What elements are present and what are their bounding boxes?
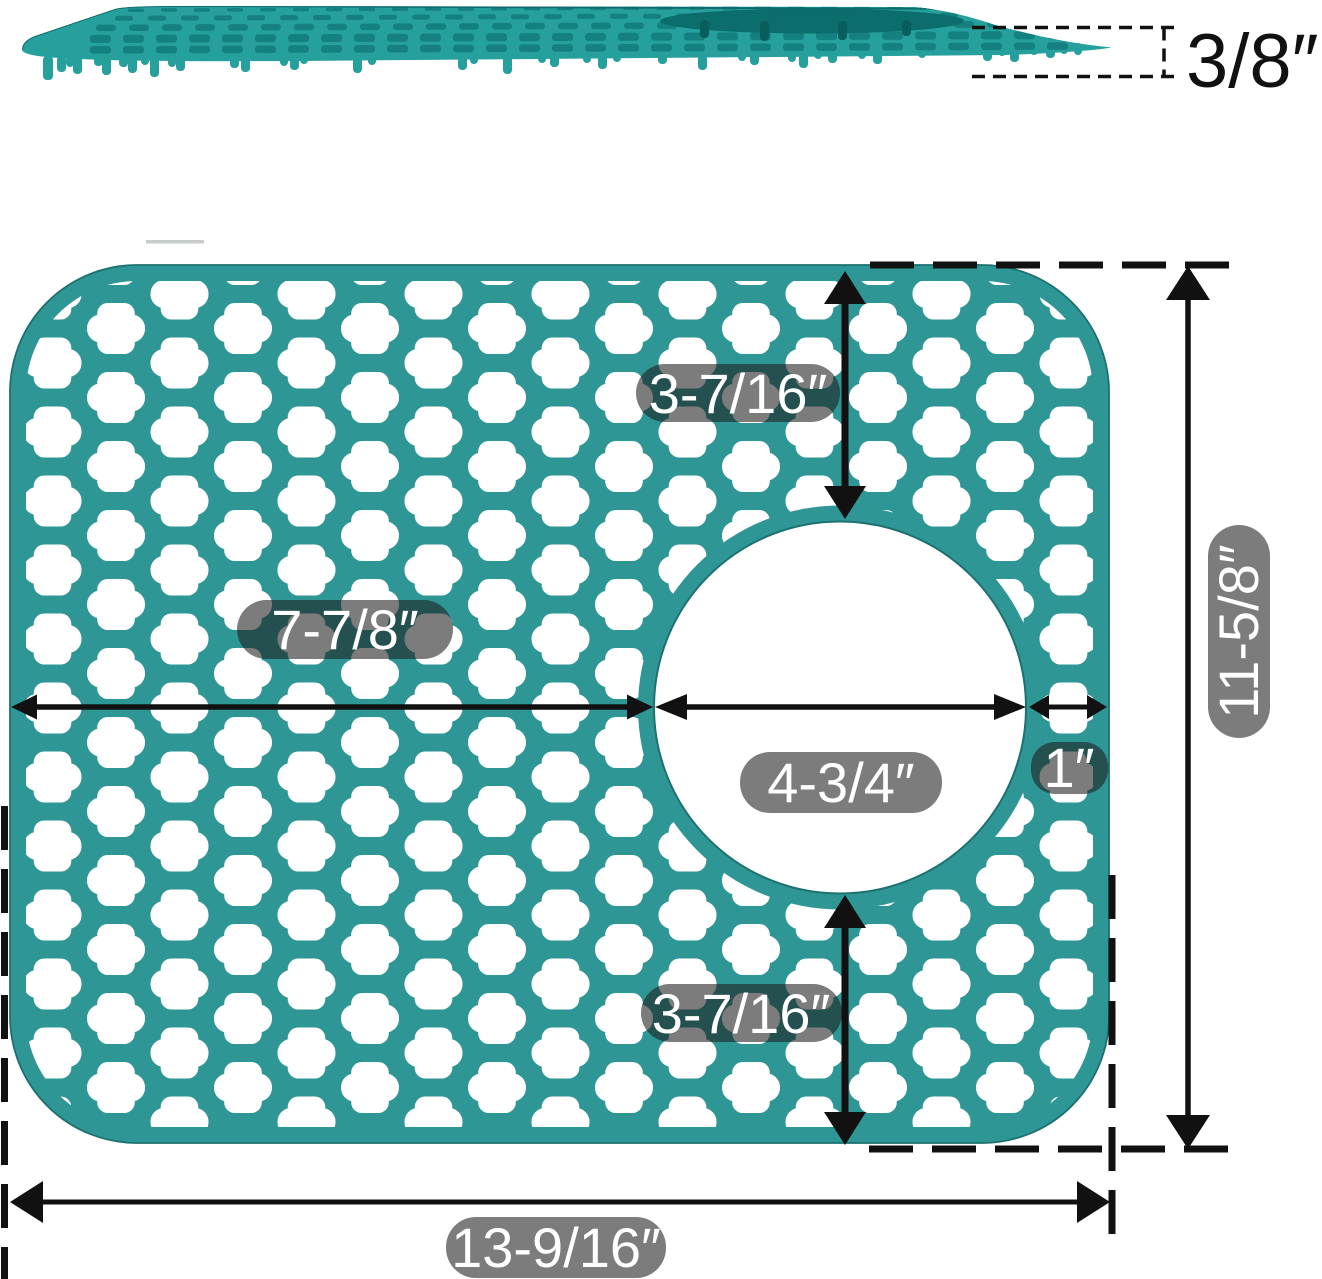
svg-text:4-3/4″: 4-3/4″ <box>767 751 914 814</box>
svg-text:3-7/16″: 3-7/16″ <box>649 362 828 425</box>
svg-text:1″: 1″ <box>1044 736 1095 799</box>
svg-text:13-9/16″: 13-9/16″ <box>451 1216 661 1279</box>
svg-text:3-7/16″: 3-7/16″ <box>652 982 831 1045</box>
svg-text:11-5/8″: 11-5/8″ <box>1207 544 1270 718</box>
svg-text:7-7/8″: 7-7/8″ <box>271 598 418 661</box>
svg-text:3/8″: 3/8″ <box>1186 19 1319 104</box>
